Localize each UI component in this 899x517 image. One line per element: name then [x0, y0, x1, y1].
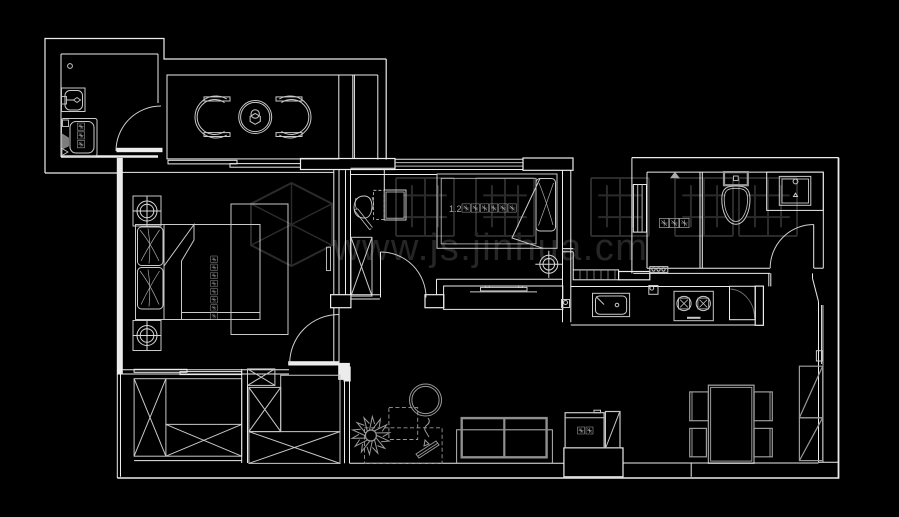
svg-text:1.2: 1.2 — [449, 204, 462, 214]
